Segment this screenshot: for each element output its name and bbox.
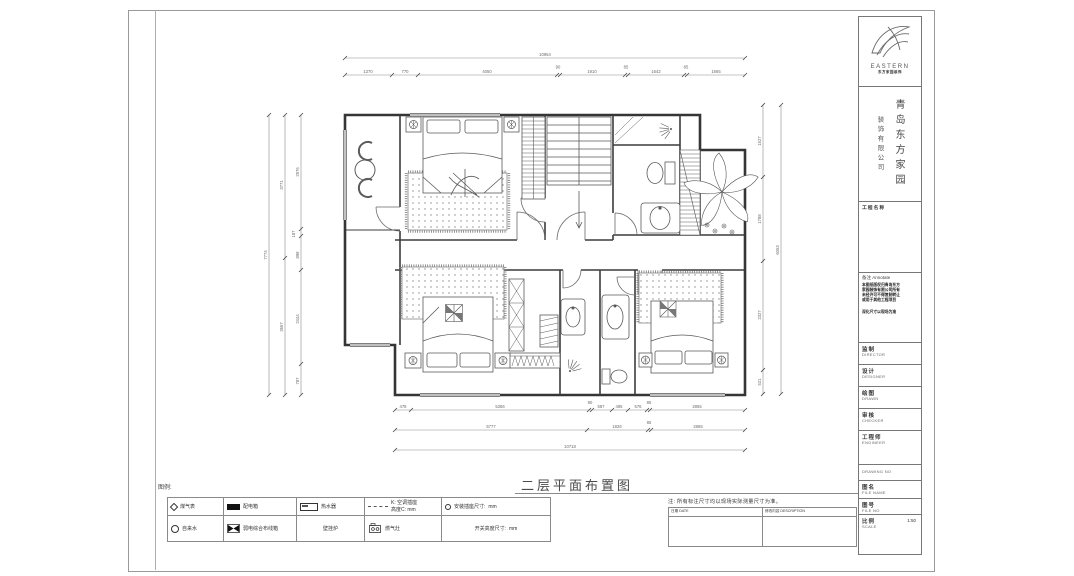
eastern-logo-icon (868, 19, 912, 61)
title-underline (515, 493, 858, 494)
legend-item-label: 配电箱 (243, 503, 258, 510)
project-name-box: 工程名称 (859, 202, 921, 273)
legend-item-label: 弱电综合布线箱 (243, 525, 278, 532)
dim-label: 2976 (295, 167, 300, 177)
titleblock-row-file-no: 图号 FILE NO (859, 499, 921, 515)
dim-label: 6063 (775, 245, 780, 255)
dresser (540, 315, 558, 347)
shelf-unit (509, 279, 524, 351)
titleblock-row-director: 监制 DIRECTOR (859, 343, 921, 365)
titleblock-row-designer: 设计 DESIGNER (859, 365, 921, 387)
master-bedroom (406, 117, 545, 232)
row-label-en: DIRECTOR (862, 352, 885, 357)
toilet-tank (665, 162, 675, 184)
sink-counter (561, 299, 585, 335)
scale-value: 1:50 (907, 518, 916, 523)
water-meter-icon (171, 525, 179, 533)
socket-size-icon (445, 504, 451, 510)
titleblock-row-scale: 比例 SCALE 1:50 (859, 515, 921, 556)
bathroom-right (602, 295, 629, 384)
dim-label: 7774 (263, 250, 268, 260)
stairs-arrow (576, 191, 582, 228)
sheet-note: 注: 所有标注尺寸均以现场实际测量尺寸为准。 (668, 498, 781, 505)
legend-item-label: 壁挂炉 (323, 525, 338, 532)
dim-label: 495 (616, 404, 624, 409)
annotate-box: 备注 Annotate 本图纸版权归青岛东方 家园装饰有限公司所有 未经许可不得… (859, 273, 921, 343)
wardrobe-left (510, 353, 560, 368)
dimension-labels: 10954 1370 770 4050 90 1910 85 1642 85 1… (263, 52, 780, 449)
bathroom-left (561, 299, 585, 376)
dim-label: 4050 (482, 69, 492, 74)
drawing-sheet: 10954 1370 770 4050 90 1910 85 1642 85 1… (0, 0, 1074, 576)
row-label-en: FILE NAME (862, 490, 886, 495)
dim-label: 3771 (279, 180, 284, 190)
company-name-main: 青岛东方家园 (891, 99, 906, 189)
row-label-en: SCALE (862, 524, 877, 529)
dim-label: 90 (588, 400, 593, 405)
master-wardrobe (522, 117, 545, 199)
row-label-en: DESIGNER (862, 374, 885, 379)
dim-label: 787 (295, 377, 300, 385)
dim-label: 2444 (295, 314, 300, 324)
legend-item-label: 开关高度尺寸: (475, 525, 506, 532)
dim-label: 576 (635, 404, 643, 409)
sink-counter (602, 295, 629, 339)
gas-meter-icon (170, 502, 178, 510)
dim-label: 10718 (564, 444, 576, 449)
pillow (427, 353, 457, 367)
dim-label: 1527 (757, 136, 762, 146)
pillow (685, 351, 712, 364)
dim-label: 85 (624, 65, 629, 70)
legend-label: 图例: (158, 482, 172, 491)
lv-wiring-box-icon (227, 524, 240, 533)
pillow (655, 351, 682, 364)
dim-label: 85 (647, 420, 652, 425)
company-name-sub: 装饰有限公司 (874, 116, 884, 173)
dim-label: 2327 (757, 310, 762, 320)
row-label-en: DRAWING NO (862, 469, 891, 474)
annotate-label-cn: 备注 (862, 275, 871, 280)
legend-item-unit: mm (488, 504, 496, 510)
legend-item-label: 安装插座尺寸: (454, 503, 485, 510)
ac-socket-icon (368, 506, 388, 507)
legend-item-label: 热水器 (321, 503, 336, 510)
dim-label: 478 (400, 404, 408, 409)
legend-table: 煤气表 配电箱 热水器 K: 空调插座高度C: mm 安装插座尺寸:mm 自来水… (167, 497, 551, 542)
stairs (547, 117, 611, 228)
dim-label: 1910 (587, 69, 597, 74)
titleblock-row-drawn: 绘图 DRAWN (859, 387, 921, 409)
legend-item-label: 燃气灶 (385, 525, 400, 532)
plan-title: 二层平面布置图 (521, 475, 633, 494)
toilet (647, 163, 663, 184)
bedroom-left (401, 266, 560, 372)
flowers (705, 223, 734, 234)
company-logo: EASTERN 东方家园装饰 (859, 17, 921, 87)
dim-label: 1642 (651, 69, 661, 74)
dim-label: 2865 (693, 424, 703, 429)
row-label-en: FILE NO (862, 508, 880, 513)
titleblock-row-checker: 审核 CHECKER (859, 409, 921, 431)
dim-label: 898 (295, 251, 300, 259)
dim-label: 90 (556, 65, 561, 70)
dim-label: 2865 (692, 404, 702, 409)
annotate-footer: 深化尺寸以现场为准 (859, 310, 921, 315)
legend-item-label: 煤气表 (180, 503, 195, 510)
row-label-en: ENGINEER (862, 440, 885, 445)
revision-table: 日期 DATE 修改内容 DESCRIPTION (668, 507, 857, 547)
project-name-label: 工程名称 (862, 204, 885, 211)
sheet-margin-line (155, 10, 156, 570)
distribution-box-icon (227, 504, 240, 510)
legend-item-label2: 高度C: mm (391, 507, 417, 513)
titleblock-row-drawing-no: DRAWING NO (859, 465, 921, 481)
legend-item-unit: mm (509, 526, 517, 532)
annotate-line: 或用于其他工程项目 (859, 298, 921, 303)
dim-label: 3667 (279, 322, 284, 332)
bedroom-right (638, 272, 728, 373)
dim-label: 85 (684, 65, 689, 70)
balcony-table (355, 160, 375, 180)
dim-label: 1788 (757, 214, 762, 224)
legend-item-label: 自来水 (182, 525, 197, 532)
legend-item-label: K: 空调插座 (391, 500, 417, 506)
balcony-furniture (355, 142, 375, 197)
titleblock-row-engineer: 工程师 ENGINEER (859, 431, 921, 465)
water-heater-icon (300, 503, 318, 511)
dim-label: 10954 (539, 52, 551, 57)
dim-label: 770 (402, 69, 410, 74)
logo-subtext: 东方家园装饰 (859, 70, 921, 75)
dim-label: 5356 (495, 404, 505, 409)
row-label-en: CHECKER (862, 418, 884, 423)
title-block: EASTERN 东方家园装饰 青岛东方家园 装饰有限公司 工程名称 备注 Ann… (858, 16, 922, 555)
dim-label: 85 (647, 400, 652, 405)
titleblock-row-file-name: 图名 FILE NAME (859, 481, 921, 499)
dim-label: 587 (598, 404, 606, 409)
company-name: 青岛东方家园 装饰有限公司 (859, 87, 921, 202)
gas-stove-icon (368, 523, 382, 534)
revision-col-header: 修改内容 DESCRIPTION (763, 508, 856, 517)
floor-plan: 10954 1370 770 4050 90 1910 85 1642 85 1… (255, 45, 810, 465)
pillow (460, 353, 490, 367)
annotate-label-en: Annotate (872, 275, 890, 280)
toilet (611, 370, 627, 383)
dim-label: 1370 (363, 69, 373, 74)
dim-label: 5777 (486, 424, 496, 429)
row-label-en: DRAWN (862, 396, 878, 401)
dim-label: 187 (291, 230, 296, 238)
revision-col-header: 日期 DATE (669, 508, 762, 517)
dim-label: 1665 (711, 69, 721, 74)
dim-label: 1826 (612, 424, 622, 429)
toilet-tank (602, 369, 610, 384)
dim-label: 521 (757, 378, 762, 386)
